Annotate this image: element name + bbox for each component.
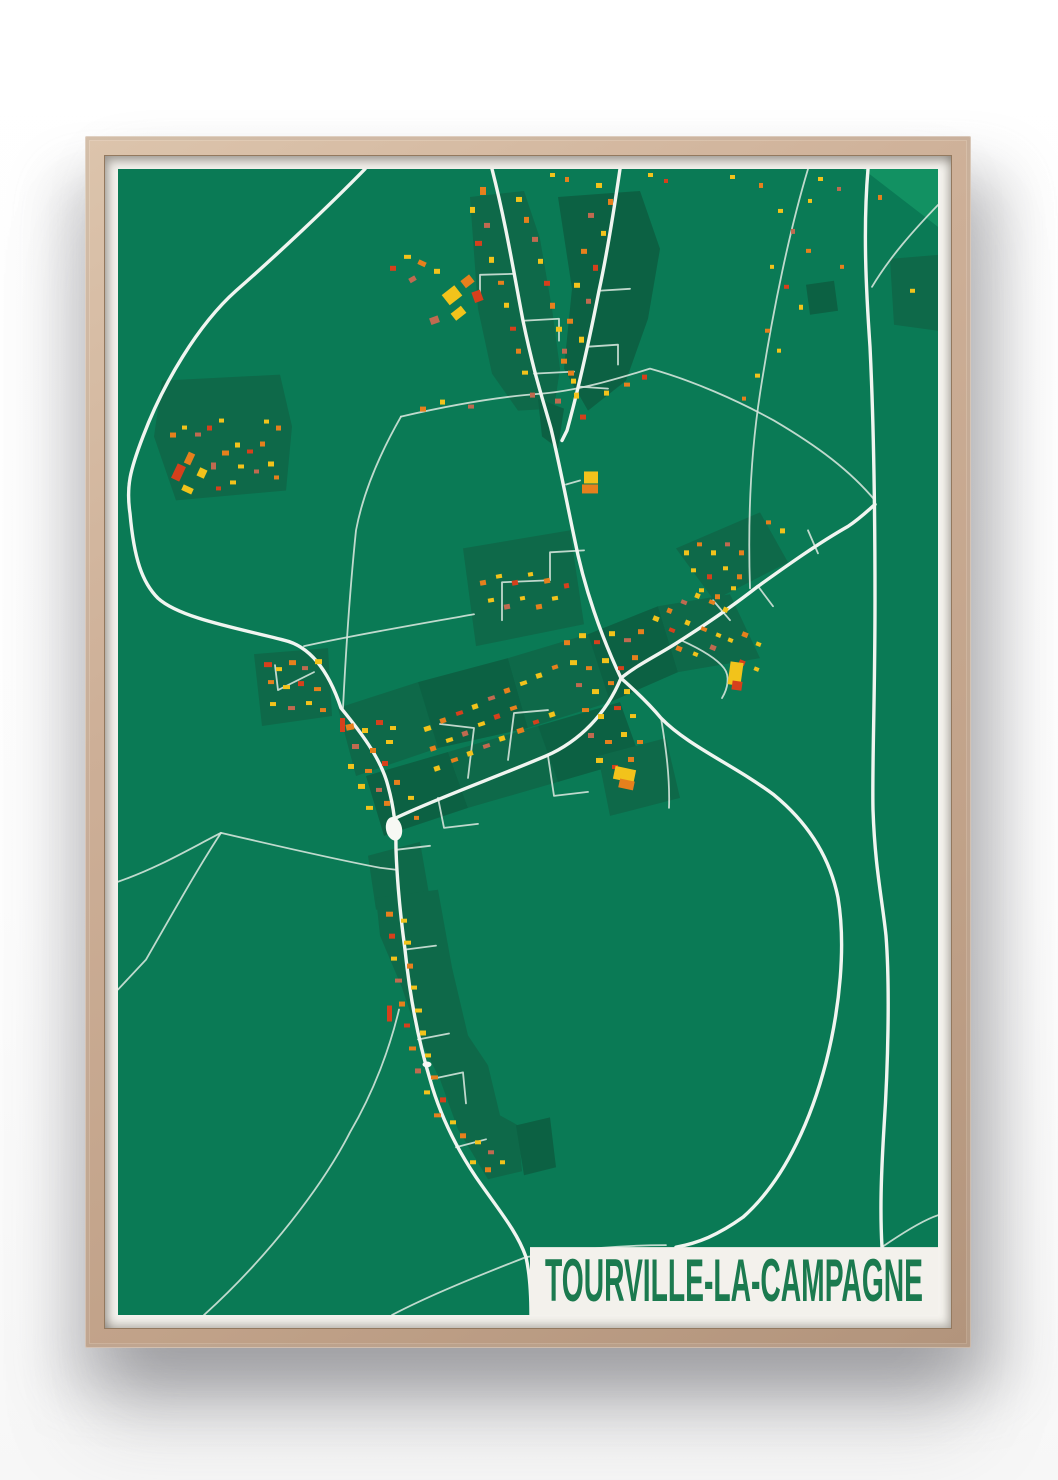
building <box>878 195 882 200</box>
building <box>268 461 274 466</box>
building <box>314 687 321 691</box>
building <box>808 199 812 203</box>
poster-matte: TOURVILLE-LA-CAMPAGNE <box>105 156 951 1328</box>
building <box>574 393 579 399</box>
building <box>562 349 567 354</box>
building <box>404 941 411 945</box>
building <box>512 580 519 586</box>
building <box>550 173 555 177</box>
building <box>390 726 396 730</box>
building <box>608 199 613 205</box>
building <box>264 420 269 424</box>
building <box>570 660 577 665</box>
building <box>440 400 445 405</box>
building <box>564 583 570 589</box>
pond <box>423 1061 432 1067</box>
building <box>837 187 841 191</box>
building <box>840 265 844 269</box>
building <box>707 574 712 579</box>
building <box>386 912 393 917</box>
building <box>538 259 543 264</box>
building <box>480 580 487 586</box>
building <box>424 1090 430 1094</box>
building <box>806 249 811 253</box>
building <box>605 740 612 744</box>
building <box>195 433 201 437</box>
building <box>298 681 304 686</box>
building <box>584 471 598 483</box>
building <box>664 179 668 183</box>
building <box>414 816 419 820</box>
building <box>391 957 397 961</box>
building <box>730 175 735 179</box>
building <box>579 633 586 638</box>
building <box>550 303 555 309</box>
building <box>276 426 281 431</box>
building <box>520 596 526 601</box>
building <box>765 329 770 333</box>
building <box>544 578 551 584</box>
building <box>630 714 636 718</box>
building <box>522 371 528 375</box>
building <box>624 638 631 642</box>
building <box>586 666 592 670</box>
building <box>420 407 426 412</box>
building <box>602 658 609 663</box>
building <box>238 464 244 468</box>
building <box>365 769 372 773</box>
building <box>624 383 630 387</box>
building <box>624 689 630 694</box>
building <box>715 594 720 599</box>
building <box>723 566 728 570</box>
building <box>516 349 521 354</box>
building <box>586 299 591 304</box>
building <box>536 604 543 610</box>
building <box>475 1140 481 1144</box>
building <box>411 986 417 990</box>
building <box>608 681 614 685</box>
building <box>580 415 586 420</box>
building <box>574 283 580 288</box>
building <box>182 426 187 430</box>
building <box>387 1006 392 1022</box>
building <box>409 1046 416 1050</box>
building <box>576 683 582 687</box>
building <box>485 1167 491 1172</box>
building <box>315 659 322 664</box>
building <box>598 714 604 719</box>
building <box>555 399 561 404</box>
building <box>691 568 696 572</box>
building <box>604 391 609 396</box>
building <box>498 281 504 285</box>
building <box>415 1009 422 1013</box>
building <box>434 1113 441 1117</box>
building <box>593 265 598 271</box>
building <box>395 979 402 983</box>
building <box>565 177 569 182</box>
building <box>621 732 627 737</box>
building <box>480 187 486 195</box>
building <box>770 265 774 269</box>
building <box>376 720 383 725</box>
building <box>420 1030 426 1035</box>
building <box>777 349 781 353</box>
building <box>614 706 621 710</box>
building <box>376 788 382 792</box>
building <box>475 241 482 246</box>
building <box>264 662 272 667</box>
building <box>384 801 390 806</box>
building <box>684 550 689 555</box>
building <box>268 680 274 684</box>
building <box>755 374 760 378</box>
building <box>425 1053 431 1057</box>
building <box>470 207 475 213</box>
building <box>500 1160 505 1164</box>
building <box>628 757 634 762</box>
building <box>254 469 259 473</box>
building <box>382 761 388 766</box>
building <box>216 486 221 490</box>
building <box>742 397 746 401</box>
building <box>415 1068 421 1073</box>
building <box>571 379 576 384</box>
building <box>637 740 643 744</box>
building <box>207 426 212 431</box>
building <box>348 764 354 769</box>
building <box>567 319 573 324</box>
building <box>260 442 265 447</box>
building <box>711 550 716 555</box>
building <box>642 375 647 380</box>
building <box>697 542 702 546</box>
building <box>561 359 567 364</box>
building <box>791 229 795 234</box>
building <box>274 475 279 479</box>
building <box>270 702 276 706</box>
building <box>532 237 538 242</box>
building <box>408 796 414 800</box>
building <box>211 462 216 469</box>
building <box>504 303 509 308</box>
building <box>283 685 290 689</box>
building <box>737 574 742 579</box>
building <box>766 520 771 524</box>
building <box>340 718 345 732</box>
building <box>230 480 236 484</box>
building <box>731 586 736 590</box>
building <box>725 542 730 546</box>
building <box>699 588 704 592</box>
building <box>386 740 393 744</box>
building <box>799 305 803 310</box>
building <box>530 393 535 398</box>
building <box>288 706 295 710</box>
building <box>582 708 589 712</box>
building <box>564 640 570 645</box>
building <box>484 223 490 228</box>
building <box>544 281 550 286</box>
building <box>618 666 624 670</box>
building <box>596 183 602 188</box>
building <box>431 1075 438 1079</box>
building <box>528 572 534 577</box>
building <box>276 667 282 671</box>
building <box>594 640 600 644</box>
building <box>516 197 522 202</box>
building <box>638 629 644 634</box>
building <box>389 934 395 939</box>
wall: { "poster": { "title": "TOURVILLE-LA-CAM… <box>0 0 1058 1480</box>
building <box>632 655 638 660</box>
building <box>910 289 915 293</box>
building <box>306 701 312 705</box>
map-poster: TOURVILLE-LA-CAMPAGNE <box>118 169 938 1315</box>
building <box>407 964 413 969</box>
building <box>579 337 584 343</box>
building <box>247 450 253 454</box>
building <box>219 419 224 423</box>
building <box>588 213 594 218</box>
poster-frame: TOURVILLE-LA-CAMPAGNE <box>85 136 971 1348</box>
building <box>582 484 598 493</box>
building <box>568 371 574 376</box>
building <box>289 660 296 665</box>
building <box>739 550 744 555</box>
land-parcel <box>806 281 838 315</box>
building <box>222 451 229 456</box>
building <box>235 443 240 448</box>
building <box>460 1133 466 1138</box>
building <box>489 257 494 263</box>
building <box>588 733 594 738</box>
building <box>434 269 440 274</box>
building <box>504 604 511 610</box>
building <box>170 433 176 438</box>
poster-title: TOURVILLE-LA-CAMPAGNE <box>545 1247 923 1314</box>
building <box>784 285 789 289</box>
building <box>818 177 823 181</box>
building <box>601 231 606 236</box>
building <box>780 528 785 533</box>
building <box>401 919 407 923</box>
building <box>556 327 562 332</box>
building <box>404 1024 410 1028</box>
building <box>778 209 783 213</box>
building <box>399 1002 405 1007</box>
building <box>352 744 359 749</box>
building <box>302 666 308 670</box>
building <box>362 728 368 733</box>
building <box>358 784 365 789</box>
building <box>759 183 763 188</box>
building <box>370 748 376 753</box>
building <box>320 708 326 712</box>
building <box>609 631 615 636</box>
building <box>440 1097 446 1102</box>
building <box>488 1150 494 1154</box>
building <box>450 1120 456 1124</box>
building <box>390 266 396 271</box>
building <box>394 780 400 785</box>
building <box>592 689 599 694</box>
building <box>581 249 587 254</box>
building <box>524 217 529 223</box>
building <box>404 255 411 259</box>
building <box>510 327 516 331</box>
building <box>731 680 742 690</box>
building <box>648 173 653 177</box>
building <box>366 806 373 810</box>
building <box>596 758 603 763</box>
building <box>470 1160 476 1164</box>
building <box>468 405 474 409</box>
